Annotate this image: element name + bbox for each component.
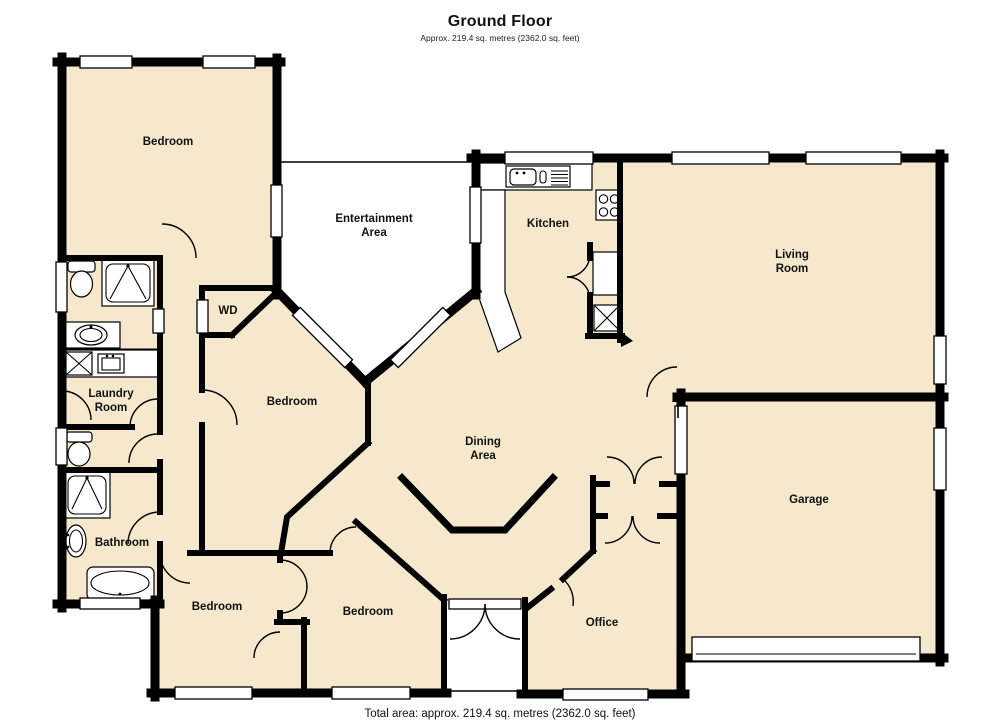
window [153, 309, 164, 333]
room-label-bedroom-bottom-middle: Bedroom [343, 606, 393, 618]
bathroom-sink-icon [66, 525, 86, 557]
room-label-living-line2: Room [776, 263, 809, 275]
window [806, 152, 901, 164]
window [56, 428, 67, 465]
room-label-garage: Garage [789, 494, 829, 506]
room-label-kitchen: Kitchen [527, 218, 569, 230]
room-label-entertainment-line1: Entertainment [335, 213, 412, 225]
window [175, 687, 252, 699]
appliance-icon [594, 305, 620, 331]
room-label-bedroom-middle: Bedroom [267, 396, 317, 408]
floor-plan-canvas: Bedroom Entertainment Area Kitchen Livin… [0, 0, 1000, 727]
toilet-icon [68, 261, 95, 297]
room-label-bedroom-top-left: Bedroom [143, 136, 193, 148]
window [332, 687, 410, 699]
room-label-office: Office [586, 617, 619, 629]
vanity-sink-icon [64, 322, 120, 348]
window [80, 598, 140, 609]
room-label-laundry-line2: Room [95, 402, 128, 414]
toilet-icon-2 [66, 432, 92, 466]
room-label-dining-line1: Dining [465, 436, 501, 448]
window [563, 689, 648, 700]
window [505, 152, 593, 164]
floor-plan-page: Ground Floor Approx. 219.4 sq. metres (2… [0, 0, 1000, 727]
window [470, 187, 481, 243]
kitchen-closet [593, 252, 620, 295]
room-label-laundry-line1: Laundry [88, 388, 134, 400]
room-label-entertainment-line2: Area [361, 227, 387, 239]
window [271, 185, 282, 237]
entry-vestibule [447, 604, 522, 692]
room-label-wd: WD [218, 305, 237, 317]
shower-icon [102, 260, 154, 306]
total-area-footer: Total area: approx. 219.4 sq. metres (23… [0, 708, 1000, 720]
kitchen-sink-icon [506, 166, 570, 187]
garage-door [692, 637, 920, 661]
window [203, 56, 255, 68]
window [675, 406, 687, 474]
washing-machine-icon [66, 352, 92, 375]
window [80, 56, 132, 68]
room-label-bathroom: Bathroom [95, 537, 149, 549]
laundry-sink-icon [98, 354, 124, 373]
bathtub-icon [87, 567, 154, 600]
room-label-dining-line2: Area [470, 450, 496, 462]
window [56, 262, 67, 312]
window [934, 336, 946, 384]
window [197, 300, 208, 333]
room-label-living-line1: Living [775, 249, 809, 261]
shower-icon-2 [64, 472, 110, 518]
window [934, 428, 946, 490]
window [672, 152, 769, 164]
room-label-bedroom-bottom-left: Bedroom [192, 601, 242, 613]
